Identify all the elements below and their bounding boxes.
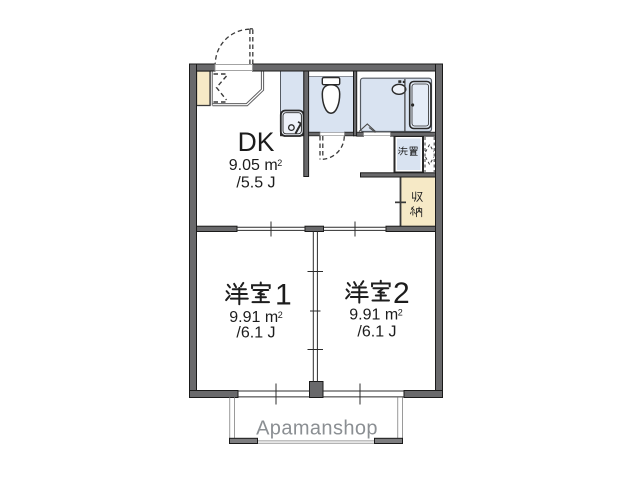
svg-text:DK: DK	[238, 127, 275, 157]
svg-text:1: 1	[275, 279, 292, 312]
svg-text:9.05 m2: 9.05 m2	[229, 157, 282, 174]
svg-text:/6.1 J: /6.1 J	[236, 324, 275, 341]
svg-text:/6.1 J: /6.1 J	[357, 323, 396, 340]
svg-text:9.91 m2: 9.91 m2	[349, 307, 402, 324]
svg-text:2: 2	[393, 277, 410, 310]
svg-text:/5.5 J: /5.5 J	[236, 174, 275, 191]
svg-text:Apamanshop: Apamanshop	[256, 418, 378, 440]
